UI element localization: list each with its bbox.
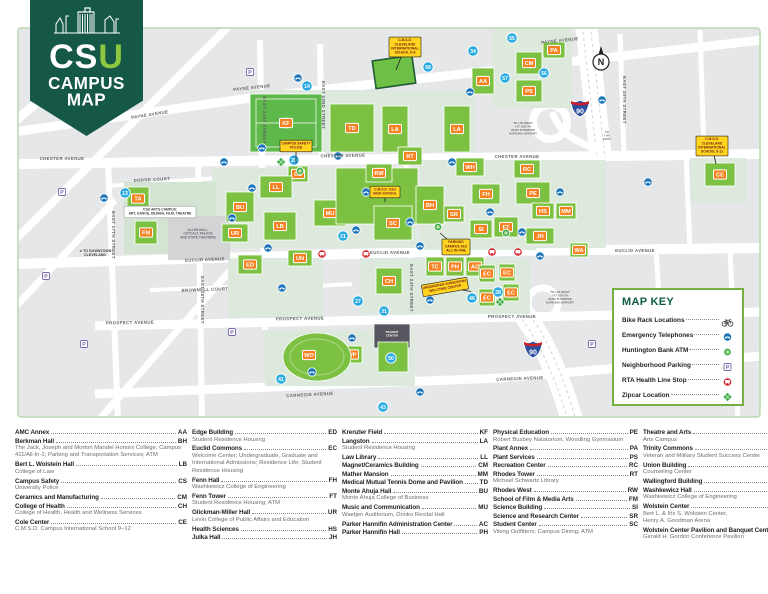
- building-badge-CE: CE: [714, 170, 727, 179]
- building-name: Euclid Commons: [192, 445, 242, 452]
- svg-text:27: 27: [355, 299, 361, 305]
- directory-entry-PS: Plant ServicesPS: [493, 454, 638, 461]
- directory-entry-BU: Monte Ahuja HallBUMonte Ahuja College of…: [342, 488, 488, 503]
- dotted-leader: [534, 491, 626, 492]
- svg-text:CM: CM: [525, 61, 534, 67]
- svg-text:PS: PS: [525, 89, 533, 95]
- map-key-title: MAP KEY: [622, 296, 734, 308]
- building-description: Bert L. & Iris S. Wolstein Center, Henry…: [643, 511, 768, 526]
- building-description: Robert Busbey Natatorium, Woodling Gymna…: [493, 437, 638, 444]
- building-name: Wallingford Building: [643, 478, 702, 485]
- building-description: Counseling Center: [643, 469, 768, 476]
- building-RT: RT: [398, 147, 422, 165]
- svg-text:LA: LA: [453, 127, 461, 133]
- building-TD: TD: [330, 104, 374, 152]
- building-code: CM: [177, 494, 187, 501]
- dotted-leader: [671, 394, 719, 395]
- directory-entry-CS: Campus SafetyCSUniversity Police: [15, 478, 187, 493]
- building-badge-WH: WH: [464, 162, 477, 171]
- building-badge-MU: MU: [324, 208, 337, 217]
- dotted-leader: [222, 538, 327, 539]
- campus-map: AATDLALACSLLBUURLBMURTRWSCBHSRSIFTWHFHRC…: [0, 0, 768, 420]
- building-PE: PE: [516, 182, 550, 204]
- building-name: Plant Services: [493, 454, 535, 461]
- building-badge-TD: TD: [346, 123, 359, 132]
- rta-icon: [318, 250, 326, 258]
- svg-text:TD: TD: [348, 126, 356, 132]
- building-name: Medical Mutual Tennis Dome and Pavilion: [342, 479, 463, 486]
- building-badge-PH: PH: [449, 262, 462, 271]
- directory-entry-SR: Science and Research CenterSR: [493, 513, 638, 520]
- building-badge-MM: MM: [560, 206, 573, 215]
- svg-text:55: 55: [509, 36, 515, 42]
- building-code: PA: [630, 445, 638, 452]
- svg-text:SR: SR: [450, 212, 458, 218]
- map-key-label: Zipcar Location: [622, 392, 670, 399]
- dotted-leader: [551, 433, 628, 434]
- building-code: CE: [178, 519, 187, 526]
- building-name: Fenn Tower: [192, 493, 226, 500]
- building-name: Berkman Hall: [15, 438, 54, 445]
- dotted-leader: [235, 433, 326, 434]
- atm-icon: [434, 223, 442, 231]
- svg-text:PE: PE: [529, 191, 537, 197]
- svg-text:WO: WO: [304, 353, 314, 359]
- building-badge-LB: LB: [274, 221, 287, 230]
- building-description: University Police: [15, 485, 187, 492]
- svg-text:P: P: [590, 342, 594, 348]
- building-name: Rhodes Tower: [493, 471, 535, 478]
- dotted-leader: [421, 466, 477, 467]
- dotted-leader: [378, 458, 478, 459]
- directory-entry-CM: Magnet/Ceramics BuildingCM: [342, 462, 488, 469]
- svg-text:HS: HS: [539, 209, 547, 215]
- zipcar-icon: [721, 390, 734, 402]
- building-badge-CH: CH: [383, 276, 396, 285]
- emergency-phone-icon: [294, 74, 302, 82]
- atm-icon: [502, 229, 510, 237]
- map-note: TRANSITCENTER: [386, 330, 399, 337]
- dotted-leader: [51, 523, 176, 524]
- svg-text:UN: UN: [296, 256, 304, 262]
- building-badge-SR: SR: [448, 209, 461, 218]
- building-name: Mather Mansion: [342, 471, 389, 478]
- dotted-leader: [221, 481, 326, 482]
- building-FH: FH: [472, 184, 500, 204]
- building-code: AA: [178, 429, 187, 436]
- dotted-leader: [101, 498, 175, 499]
- directory-entry-LB: Bert L. Wolstein HallLBCollege of Law: [15, 461, 187, 476]
- building-code: CM: [478, 462, 488, 469]
- dotted-leader: [539, 525, 628, 526]
- parking-lot-28: 28: [493, 287, 503, 297]
- emergency-phone-icon: [644, 178, 652, 186]
- building-badge-ED: ED: [244, 260, 257, 269]
- building-name: Glickman-Miller Hall: [192, 509, 250, 516]
- building-code: MU: [478, 504, 488, 511]
- svg-text:14: 14: [304, 84, 310, 90]
- building-badge-HS: HS: [537, 206, 550, 215]
- building-code: SC: [629, 521, 638, 528]
- svg-text:56: 56: [541, 71, 547, 77]
- dotted-leader: [692, 364, 719, 365]
- building-name: Fenn Hall: [192, 477, 219, 484]
- svg-text:EC: EC: [483, 296, 491, 302]
- parking-lot-34: 34: [468, 46, 478, 56]
- building-CM: CM: [516, 52, 542, 74]
- building-CE: CE: [705, 163, 735, 186]
- directory-entry-MM: Mather MansionMM: [342, 471, 488, 478]
- svg-text:AA: AA: [479, 79, 487, 85]
- svg-text:ALL-IN-ONE: ALL-IN-ONE: [446, 248, 466, 252]
- dotted-leader: [693, 433, 768, 434]
- directory-entry-UR: Glickman-Miller HallURLevin College of P…: [192, 509, 337, 524]
- building-name: Rhodes West: [493, 487, 532, 494]
- emergency-phone-icon: [362, 188, 370, 196]
- rta-icon: [721, 375, 734, 387]
- building-EC: EC: [503, 284, 519, 301]
- directory-entry-PH: Parker Hannifin HallPH: [342, 529, 488, 536]
- building-name: Student Center: [493, 521, 537, 528]
- svg-text:KF: KF: [282, 121, 290, 127]
- directory-entry-RC: Recreation CenterRC: [493, 462, 638, 469]
- building-badge-EC: EC: [505, 288, 518, 297]
- building-badge-BH: BH: [424, 200, 437, 209]
- dotted-leader: [704, 482, 768, 483]
- dotted-leader: [581, 517, 627, 518]
- building-code: BH: [178, 438, 187, 445]
- building-name: Plant Annex: [493, 445, 528, 452]
- building-name: Physical Education: [493, 429, 549, 436]
- parking-lot-57: 57: [500, 73, 510, 83]
- parking-lot-31: 31: [379, 306, 389, 316]
- emergency-phone-icon: [100, 194, 108, 202]
- street-label: PROSPECT AVENUE: [276, 316, 324, 322]
- svg-text:90: 90: [529, 350, 537, 357]
- directory-entry-TD: Medical Mutual Tennis Dome and PavilionT…: [342, 479, 488, 486]
- building-FM: FM: [135, 221, 157, 244]
- svg-text:21: 21: [340, 234, 346, 240]
- map-key-item: Zipcar Location: [622, 388, 734, 403]
- dotted-leader: [393, 492, 477, 493]
- building-description: College of Law: [15, 469, 187, 476]
- building-BH: BH: [416, 186, 444, 224]
- building-badge-EC: EC: [481, 293, 494, 302]
- map-key-item: Neighborhood ParkingP: [622, 358, 734, 373]
- building-description: The Jack, Joseph and Morton Mandel Honor…: [15, 445, 187, 460]
- directory-entry-KF: Krenzler FieldKF: [342, 429, 488, 436]
- building-RC: RC: [514, 160, 540, 178]
- building-code: SR: [629, 513, 638, 520]
- svg-text:P: P: [60, 190, 64, 196]
- svg-text:TA: TA: [134, 197, 141, 203]
- svg-text:SI: SI: [478, 227, 484, 233]
- dotted-leader: [530, 449, 628, 450]
- building-name: Monte Ahuja Hall: [342, 488, 391, 495]
- directory-entry-TC: Trinity CommonsTCVeteran and Military St…: [643, 445, 768, 460]
- svg-text:WH: WH: [465, 165, 474, 171]
- building-name: College of Health: [15, 503, 65, 510]
- dotted-leader: [76, 465, 177, 466]
- dotted-leader: [228, 497, 327, 498]
- directory-column-4: Physical EducationPERobert Busbey Natato…: [493, 429, 638, 543]
- building-description: Student Residence Housing; ATM: [192, 500, 337, 507]
- svg-text:CH: CH: [385, 279, 393, 285]
- map-key-label: Neighborhood Parking: [622, 362, 691, 369]
- building-name: Trinity Commons: [643, 445, 693, 452]
- building-name: Ceramics and Manufacturing: [15, 494, 99, 501]
- parking-lot-20: 20: [289, 155, 299, 165]
- dotted-leader: [548, 466, 627, 467]
- emergency-phone-icon: [486, 208, 494, 216]
- map-key-label: Huntington Bank ATM: [622, 347, 688, 354]
- map-key-item: Emergency Telephones: [622, 328, 734, 343]
- directory-entry-PA: Plant AnnexPA: [493, 445, 638, 452]
- building-badge-FH: FH: [480, 189, 493, 198]
- directory-entry-SC: Student CenterSCViking Outfitters; Campu…: [493, 521, 638, 536]
- svg-text:58: 58: [425, 65, 431, 71]
- building-UR: UR: [222, 224, 248, 242]
- dotted-leader: [372, 442, 478, 443]
- dotted-leader: [544, 508, 630, 509]
- atm-icon: [721, 345, 734, 357]
- building-code: CS: [178, 478, 187, 485]
- svg-text:RC: RC: [523, 167, 531, 173]
- directory-entry-WP: Wolstein Center Pavilion and Banquet Cen…: [643, 527, 768, 542]
- street-label: PROSPECT AVENUE: [106, 320, 154, 326]
- svg-text:13: 13: [122, 191, 128, 197]
- parking-lot-55: 55: [507, 33, 517, 43]
- building-code: KF: [480, 429, 488, 436]
- street-label: CHESTER AVENUE: [495, 154, 540, 159]
- parking-lot-27: 27: [353, 296, 363, 306]
- building-name: Campus Safety: [15, 478, 59, 485]
- street-label: CHESTER AVENUE: [40, 156, 85, 161]
- directory-entry-CE: Cole CenterCEC.M.S.D. Campus Internation…: [15, 519, 187, 534]
- campus-map-title: CAMPUSMAP: [30, 75, 143, 108]
- parking-icon: P: [589, 341, 596, 349]
- svg-text:P: P: [726, 365, 730, 371]
- svg-text:43: 43: [380, 405, 386, 411]
- svg-text:PH: PH: [451, 265, 459, 271]
- building-description: Welcome Center; Undergraduate, Graduate …: [192, 453, 337, 475]
- directory-column-5: Theatre and ArtsTAArts CampusTrinity Com…: [643, 429, 768, 543]
- svg-text:FM: FM: [142, 231, 150, 237]
- building-code: LB: [179, 461, 187, 468]
- dotted-leader: [241, 530, 326, 531]
- building-UN: UN: [288, 250, 312, 266]
- svg-text:34: 34: [470, 49, 476, 55]
- building-SR: SR: [444, 206, 464, 222]
- dotted-leader: [689, 349, 719, 350]
- building-LA: LA: [382, 106, 408, 152]
- directory-entry-FH: Fenn HallFHWashkewicz College of Enginee…: [192, 477, 337, 492]
- emergency-phone-icon: [416, 388, 424, 396]
- svg-text:EC: EC: [483, 272, 491, 278]
- svg-text:FH: FH: [482, 192, 490, 198]
- building-CH: CH: [376, 268, 402, 294]
- street-label: EUCLID AVENUE: [370, 250, 410, 255]
- dotted-leader: [391, 475, 476, 476]
- svg-text:57: 57: [502, 76, 508, 82]
- emergency-phone-icon: [536, 252, 544, 260]
- building-code: PE: [630, 429, 638, 436]
- building-badge-EC: EC: [481, 269, 494, 278]
- emergency-phone-icon: [220, 158, 228, 166]
- building-description: Gerald H. Gordon Conference Pavilion: [643, 534, 768, 541]
- svg-text:CE: CE: [716, 173, 724, 179]
- building-code: BU: [479, 488, 488, 495]
- building-name: Health Sciences: [192, 526, 239, 533]
- building-code: PS: [630, 454, 638, 461]
- map-key-label: RTA Health Line Stop: [622, 377, 687, 384]
- building-LL: LL: [260, 176, 292, 198]
- emergency-phone-icon: [416, 242, 424, 250]
- svg-text:BH: BH: [426, 203, 434, 209]
- building-name: Wolstein Center: [643, 503, 689, 510]
- building-badge-JH: JH: [534, 231, 547, 240]
- map-key-label: Bike Rack Locations: [622, 317, 685, 324]
- building-badge-RC: RC: [521, 164, 534, 173]
- svg-text:LB: LB: [276, 224, 284, 230]
- svg-text:EC: EC: [507, 291, 515, 297]
- emergency-phone-icon: [308, 368, 316, 376]
- svg-text:LL: LL: [273, 185, 280, 191]
- street-label: EAST 24TH STREET: [409, 264, 414, 312]
- directory-entry-SI: Science BuildingSI: [493, 504, 638, 511]
- building-name: Krenzler Field: [342, 429, 382, 436]
- parking-icon: P: [81, 341, 88, 349]
- svg-text:SCHOOL 9-12: SCHOOL 9-12: [701, 149, 723, 153]
- building-code: FH: [329, 477, 337, 484]
- emergency-phone-icon: [278, 284, 286, 292]
- street-label: EAST 18TH STREET: [200, 276, 205, 324]
- svg-text:P: P: [82, 342, 86, 348]
- svg-text:MM: MM: [561, 209, 571, 215]
- rta-icon: [488, 248, 496, 256]
- emergency-phone-icon: [448, 158, 456, 166]
- building-description: Viking Outfitters; Campus Dining; ATM: [493, 529, 638, 536]
- building-WH: WH: [456, 158, 484, 176]
- building-code: CH: [178, 503, 187, 510]
- building-description: Levin College of Public Affairs and Educ…: [192, 517, 337, 524]
- parking-lot-41: 41: [276, 374, 286, 384]
- directory-column-2: Edge BuildingEDStudent Residence Housing…: [192, 429, 337, 543]
- building-name: Wolstein Center Pavilion and Banquet Cen…: [643, 527, 768, 534]
- map-key-label: Emergency Telephones: [622, 332, 693, 339]
- map-key-item: Huntington Bank ATM: [622, 343, 734, 358]
- skyline-icon: [52, 6, 122, 36]
- dotted-leader: [537, 458, 628, 459]
- street-label: EUCLID AVENUE: [615, 248, 655, 253]
- directory-entry-LA: LangstonLAStudent Residence Housing: [342, 438, 488, 453]
- dotted-leader: [402, 533, 477, 534]
- building-code: EC: [328, 445, 337, 452]
- building-description: Veteran and Military Student Success Cen…: [643, 453, 768, 460]
- svg-text:P: P: [248, 70, 252, 76]
- map-key-panel: MAP KEY Bike Rack LocationsEmergency Tel…: [612, 288, 744, 406]
- building-badge-FM: FM: [140, 228, 153, 237]
- emergency-phone-icon: [264, 244, 272, 252]
- directory-entry-PE: Physical EducationPERobert Busbey Natato…: [493, 429, 638, 444]
- building-name: Bert L. Wolstein Hall: [15, 461, 74, 468]
- svg-text:MU: MU: [326, 211, 335, 217]
- building-badge-WA: WA: [573, 245, 586, 254]
- directory-entry-CH: College of HealthCHCollege of Health, He…: [15, 503, 187, 518]
- building-badge-KF: KF: [280, 118, 293, 127]
- street-label: EAST 22ND STREET: [321, 81, 326, 129]
- parking-lot-50: 50: [386, 353, 396, 363]
- building-badge-SI: SI: [475, 224, 488, 233]
- building-badge-PE: PE: [527, 188, 540, 197]
- directory-column-3: Krenzler FieldKFLangstonLAStudent Reside…: [342, 429, 488, 543]
- directory-entry-FT: Fenn TowerFTStudent Residence Housing; A…: [192, 493, 337, 508]
- building-WO-arena: WO: [283, 333, 351, 381]
- dotted-leader: [244, 449, 326, 450]
- emergency-phone-icon: [406, 218, 414, 226]
- emergency-phone-icon: [248, 184, 256, 192]
- directory-entry-HS: Health SciencesHS: [192, 526, 337, 533]
- svg-text:RW: RW: [374, 171, 384, 177]
- parking-lot-21: 21: [338, 231, 348, 241]
- building-badge-SC: SC: [387, 218, 400, 227]
- dotted-leader: [67, 507, 176, 508]
- directory-column-1: AMC AnnexAABerkman HallBHThe Jack, Josep…: [15, 429, 187, 543]
- emergency-phone-icon: [598, 96, 606, 104]
- dotted-leader: [688, 379, 719, 380]
- building-code: AC: [479, 521, 488, 528]
- building-badge-AA: AA: [477, 76, 490, 85]
- building-LB: LB: [264, 212, 296, 240]
- svg-text:JH: JH: [536, 234, 543, 240]
- building-code: PH: [479, 529, 488, 536]
- building-description: College of Health, Health and Wellness S…: [15, 510, 187, 517]
- rta-icon: [514, 248, 522, 256]
- building-PH: PH: [446, 257, 464, 276]
- directory-entry-ED: Edge BuildingEDStudent Residence Housing: [192, 429, 337, 444]
- building-code: FT: [329, 493, 337, 500]
- building-code: JH: [329, 534, 337, 541]
- svg-text:ED: ED: [246, 263, 254, 269]
- building-description: Arts Campus: [643, 437, 768, 444]
- dotted-leader: [691, 507, 768, 508]
- building-code: HS: [328, 526, 337, 533]
- building-badge-CM: CM: [523, 58, 536, 67]
- building-badge-RW: RW: [373, 168, 386, 177]
- building-code: LL: [480, 454, 488, 461]
- directory-entry-BH: Berkman HallBHThe Jack, Joseph and Morto…: [15, 438, 187, 460]
- svg-text:PA: PA: [550, 48, 557, 54]
- building-badge-RT: RT: [404, 151, 417, 160]
- parking-icon: P: [43, 273, 50, 281]
- building-name: Music and Communication: [342, 504, 420, 511]
- directory-entry-AA: AMC AnnexAA: [15, 429, 187, 436]
- building-name: Law Library: [342, 454, 376, 461]
- csu-acronym: CSU: [30, 40, 143, 74]
- building-name: Edge Building: [192, 429, 233, 436]
- svg-text:31: 31: [381, 309, 387, 315]
- directory-entry-WH: Washkewicz HallWHWashkewicz College of E…: [643, 487, 768, 502]
- building-name: AMC Annex: [15, 429, 49, 436]
- rta-icon: [362, 250, 370, 258]
- building-ED: ED: [238, 255, 262, 274]
- svg-text:WA: WA: [574, 248, 583, 254]
- parking-lot-13: 13: [120, 188, 130, 198]
- directory-entry-CM: Ceramics and ManufacturingCM: [15, 494, 187, 501]
- dotted-leader: [61, 482, 176, 483]
- svg-text:SCHOOL K-8: SCHOOL K-8: [395, 50, 416, 54]
- parking-lot-14: 14: [302, 81, 312, 91]
